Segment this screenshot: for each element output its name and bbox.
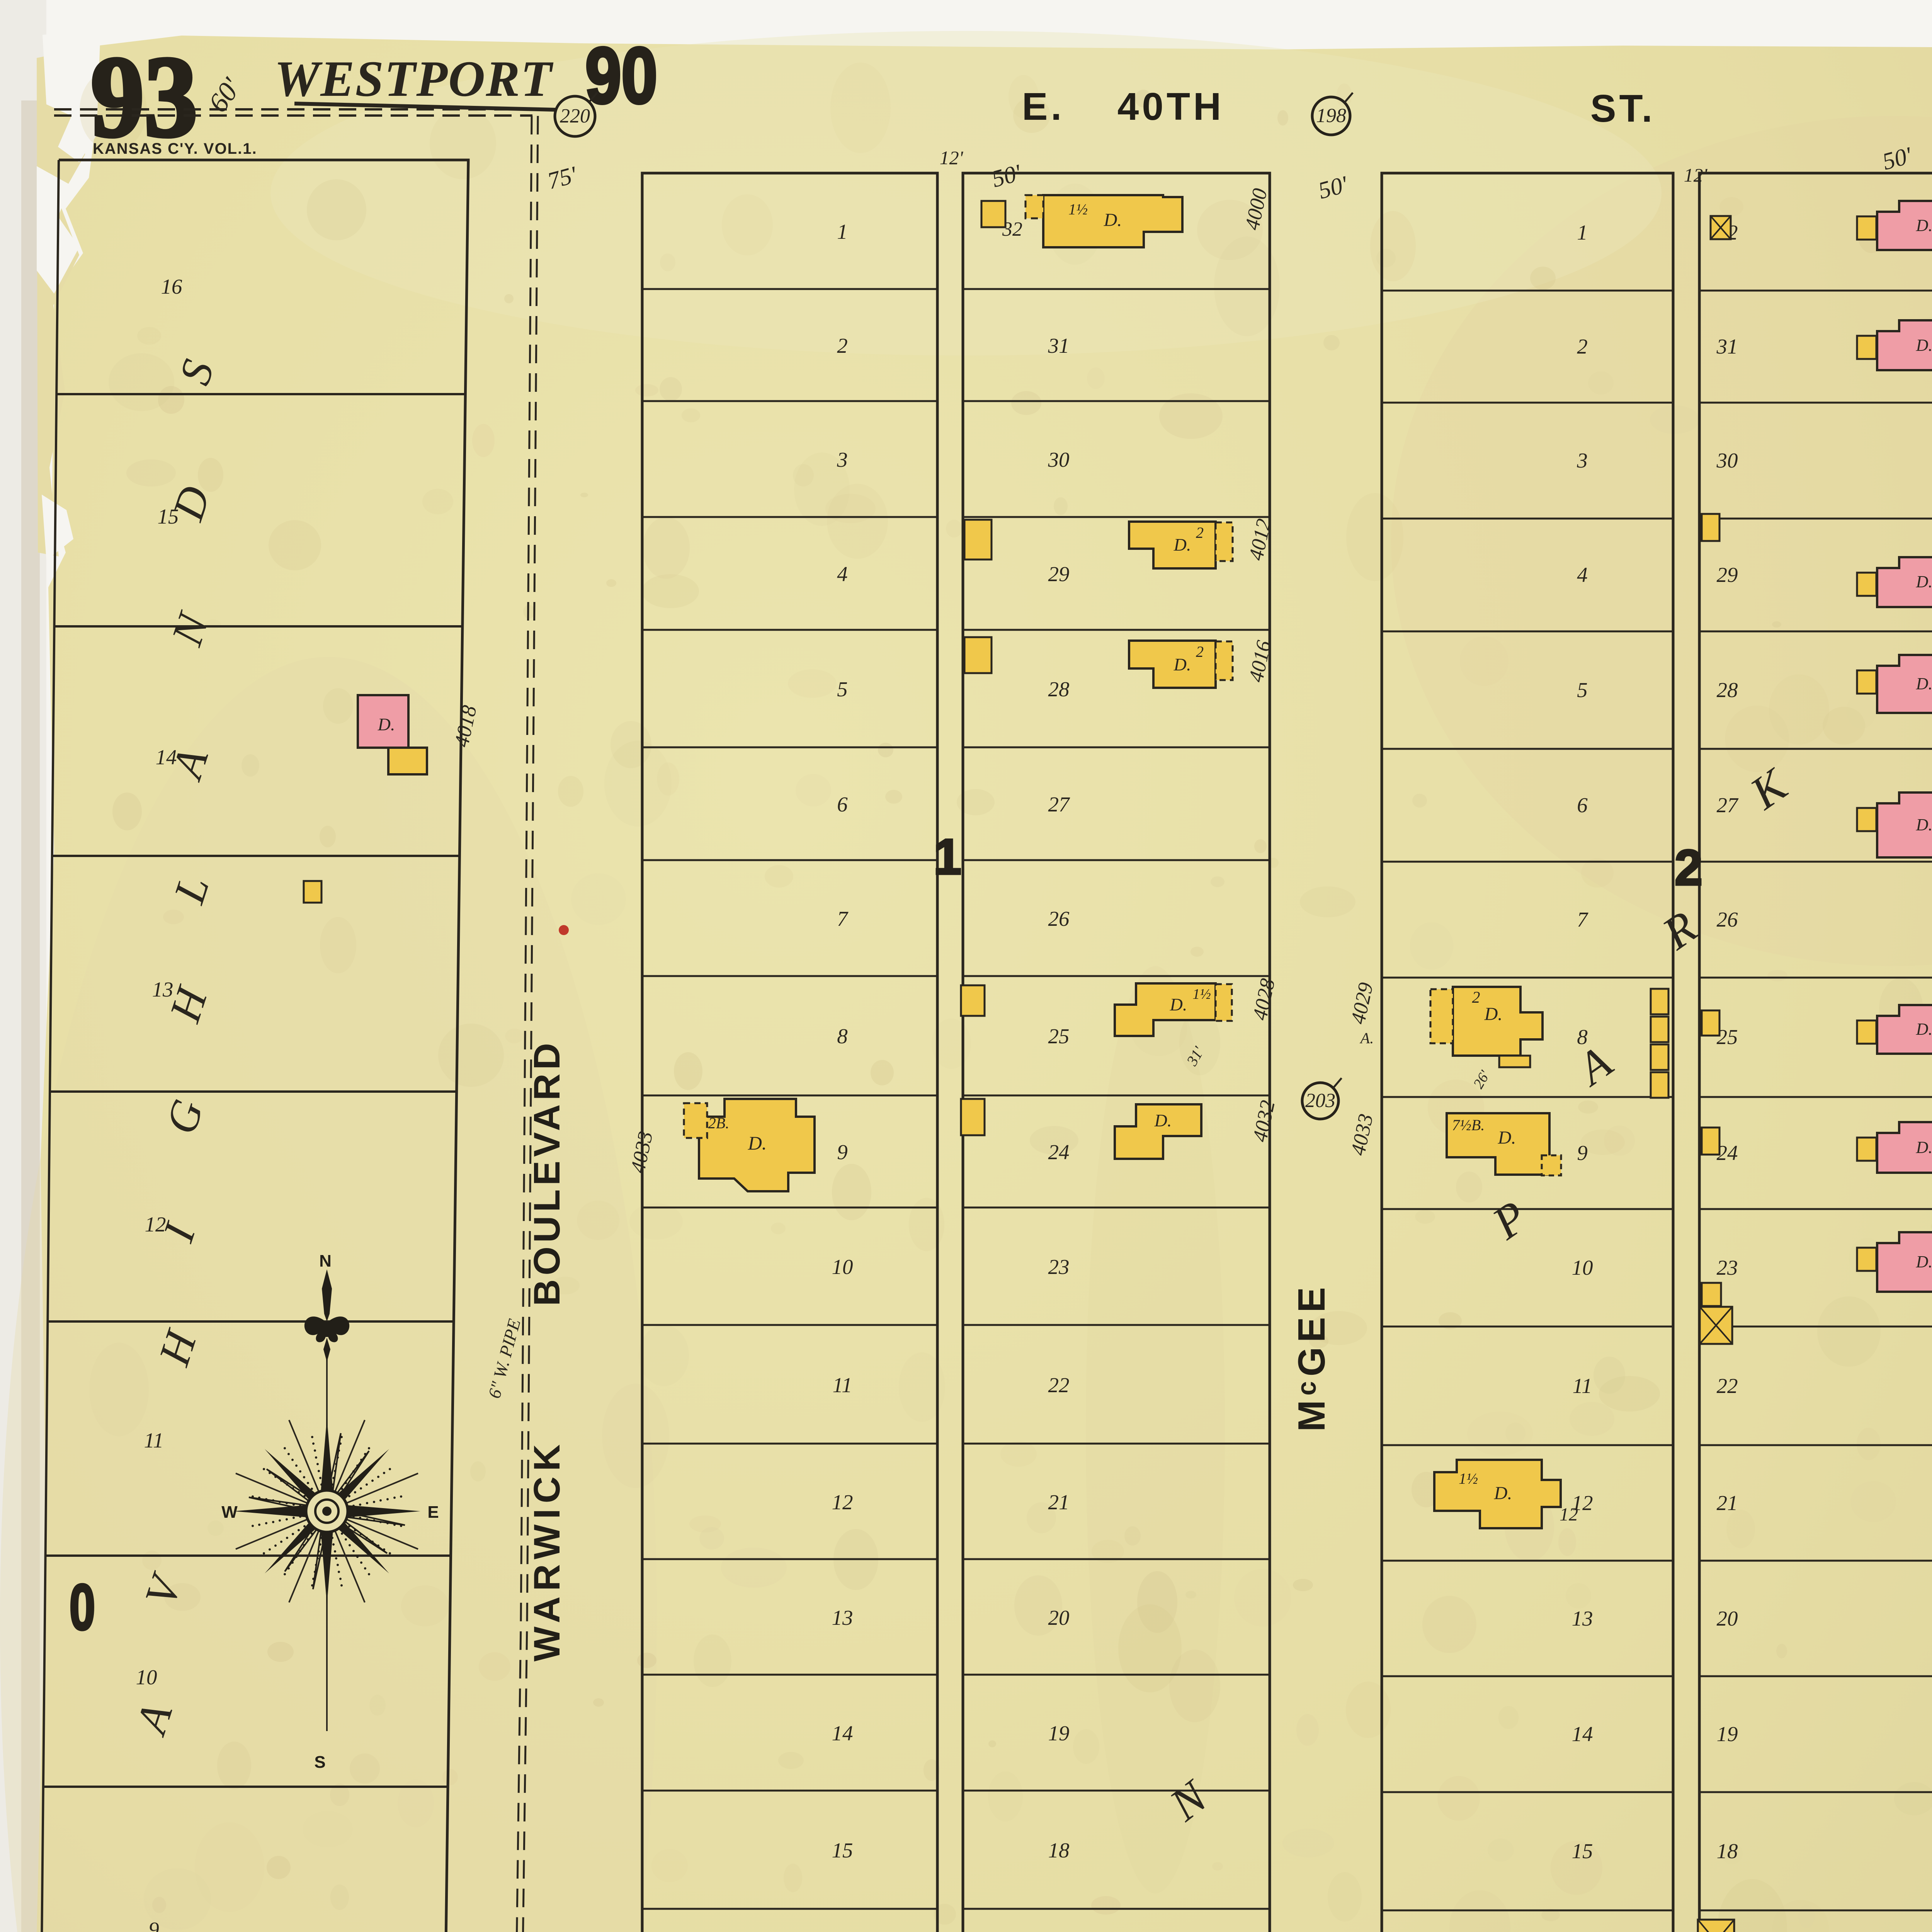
svg-text:28: 28: [1048, 677, 1070, 701]
svg-text:D.: D.: [1916, 336, 1932, 355]
svg-text:18: 18: [1717, 1839, 1738, 1863]
svg-text:7: 7: [837, 907, 849, 930]
svg-text:9: 9: [1577, 1141, 1588, 1165]
svg-text:23: 23: [1717, 1256, 1738, 1279]
svg-text:9: 9: [837, 1140, 848, 1164]
svg-text:6: 6: [837, 793, 848, 816]
svg-text:D.: D.: [1173, 655, 1191, 674]
svg-text:MᶜGEE: MᶜGEE: [1290, 1282, 1333, 1432]
svg-text:D.: D.: [1916, 572, 1932, 591]
svg-text:25: 25: [1048, 1024, 1070, 1048]
svg-text:D.: D.: [1154, 1111, 1172, 1130]
svg-text:27: 27: [1048, 793, 1071, 816]
svg-text:D.: D.: [1498, 1128, 1516, 1148]
svg-text:28: 28: [1717, 678, 1738, 702]
svg-text:19: 19: [1048, 1721, 1070, 1745]
svg-text:19: 19: [1717, 1722, 1738, 1746]
svg-text:13: 13: [832, 1606, 853, 1629]
svg-text:2: 2: [1196, 524, 1204, 541]
svg-text:12': 12': [1684, 164, 1708, 186]
svg-text:6: 6: [1577, 793, 1588, 817]
svg-text:5: 5: [1577, 678, 1588, 702]
svg-text:27: 27: [1717, 793, 1739, 817]
svg-text:15: 15: [832, 1838, 853, 1862]
svg-text:D.: D.: [1916, 1138, 1932, 1157]
svg-text:7½B.: 7½B.: [1452, 1116, 1485, 1134]
svg-text:WESTPORT: WESTPORT: [274, 50, 553, 107]
svg-text:1: 1: [934, 828, 961, 885]
svg-text:22: 22: [1717, 1374, 1738, 1398]
svg-text:220: 220: [560, 105, 590, 127]
svg-text:D.: D.: [1916, 1252, 1932, 1271]
svg-text:4: 4: [837, 562, 848, 586]
svg-text:26: 26: [1048, 907, 1070, 930]
svg-text:BOULEVARD: BOULEVARD: [526, 1039, 568, 1306]
svg-text:23: 23: [1048, 1255, 1070, 1279]
svg-text:10: 10: [832, 1255, 853, 1279]
svg-text:0: 0: [69, 1571, 95, 1644]
svg-text:20: 20: [1717, 1607, 1738, 1630]
svg-text:90: 90: [585, 31, 658, 120]
svg-text:40TH: 40TH: [1117, 85, 1225, 128]
svg-text:3: 3: [837, 448, 848, 471]
svg-text:A.: A.: [1359, 1029, 1374, 1047]
svg-text:14: 14: [832, 1721, 853, 1745]
svg-text:5: 5: [837, 677, 848, 701]
svg-text:1: 1: [837, 220, 848, 243]
svg-text:12: 12: [832, 1490, 853, 1514]
svg-text:E.: E.: [1022, 85, 1065, 128]
svg-text:10: 10: [136, 1665, 157, 1689]
svg-text:D.: D.: [1484, 1004, 1503, 1024]
svg-text:D.: D.: [1173, 535, 1191, 554]
svg-text:S: S: [314, 1753, 328, 1772]
svg-text:WARWICK: WARWICK: [526, 1439, 568, 1662]
svg-text:2: 2: [1196, 643, 1204, 660]
svg-text:24: 24: [1048, 1140, 1070, 1164]
svg-text:12': 12': [940, 147, 964, 168]
svg-text:D.: D.: [378, 714, 395, 734]
svg-text:11: 11: [144, 1429, 164, 1452]
svg-text:2: 2: [1472, 989, 1480, 1007]
svg-text:D.: D.: [1916, 216, 1932, 235]
svg-text:29: 29: [1048, 562, 1070, 586]
svg-text:16: 16: [161, 275, 183, 298]
svg-text:13: 13: [1572, 1607, 1593, 1630]
svg-text:2: 2: [1577, 335, 1588, 358]
svg-text:2: 2: [837, 334, 848, 357]
svg-text:18: 18: [1048, 1838, 1070, 1862]
svg-text:D.: D.: [1494, 1483, 1512, 1503]
svg-text:D.: D.: [1916, 674, 1932, 693]
svg-text:21: 21: [1717, 1491, 1738, 1515]
svg-text:D.: D.: [1104, 210, 1122, 230]
svg-text:D.: D.: [1170, 995, 1187, 1014]
svg-text:31: 31: [1048, 334, 1070, 357]
svg-text:14: 14: [1572, 1722, 1593, 1746]
svg-text:30: 30: [1716, 449, 1738, 472]
svg-text:1½: 1½: [1459, 1470, 1478, 1487]
svg-text:9: 9: [148, 1918, 159, 1932]
svg-text:8: 8: [837, 1024, 848, 1048]
svg-text:3: 3: [1577, 449, 1588, 472]
svg-text:203: 203: [1305, 1090, 1335, 1112]
svg-text:W: W: [221, 1503, 241, 1522]
svg-text:1: 1: [1577, 221, 1588, 244]
svg-text:1½: 1½: [1068, 201, 1088, 218]
svg-text:D.: D.: [1916, 815, 1932, 834]
svg-text:7: 7: [1577, 908, 1588, 931]
svg-text:20: 20: [1048, 1606, 1070, 1629]
svg-text:N: N: [319, 1252, 335, 1270]
svg-text:30: 30: [1048, 448, 1070, 471]
svg-text:198: 198: [1316, 105, 1346, 127]
svg-text:29: 29: [1717, 563, 1738, 587]
svg-text:4: 4: [1577, 563, 1588, 587]
svg-text:E: E: [427, 1503, 442, 1522]
svg-text:D.: D.: [748, 1132, 767, 1154]
svg-text:22: 22: [1048, 1373, 1070, 1397]
svg-text:26: 26: [1717, 908, 1738, 931]
svg-text:12: 12: [1560, 1504, 1578, 1525]
svg-text:15: 15: [1572, 1839, 1593, 1863]
svg-text:11: 11: [1573, 1374, 1592, 1398]
svg-text:1½: 1½: [1192, 986, 1211, 1002]
svg-text:2: 2: [1675, 839, 1702, 896]
svg-text:21: 21: [1048, 1490, 1070, 1514]
svg-text:2B.: 2B.: [708, 1114, 729, 1132]
svg-text:10: 10: [1572, 1256, 1593, 1279]
svg-text:31: 31: [1716, 335, 1738, 358]
svg-text:11: 11: [833, 1373, 852, 1397]
svg-text:KANSAS C'Y. VOL.1.: KANSAS C'Y. VOL.1.: [93, 140, 257, 157]
svg-text:ST.: ST.: [1590, 87, 1655, 130]
svg-text:D.: D.: [1916, 1020, 1932, 1039]
svg-text:32: 32: [1002, 218, 1022, 240]
